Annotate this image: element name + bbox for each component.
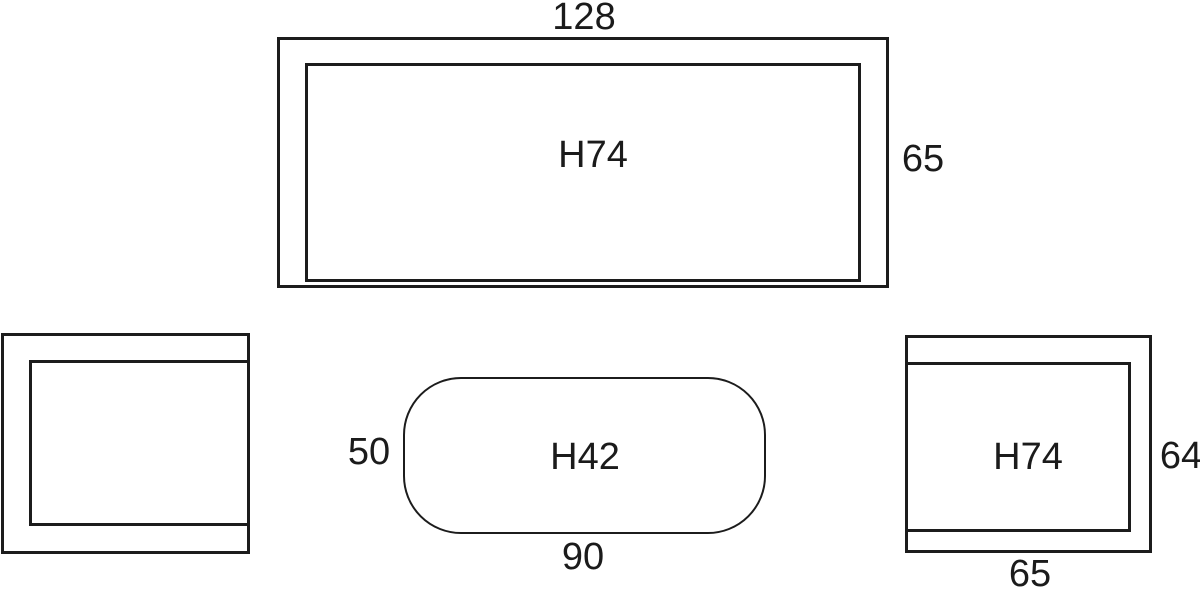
dim-label-front-width: 128 bbox=[552, 0, 615, 36]
side-view-left-inner-panel bbox=[29, 360, 247, 526]
dim-label-side-width: 65 bbox=[1009, 555, 1051, 592]
dim-label-table-height: H42 bbox=[550, 438, 620, 476]
dim-label-side-depth: 64 bbox=[1160, 437, 1200, 475]
side-view-left-outline bbox=[1, 333, 250, 554]
dim-label-front-side: 65 bbox=[902, 140, 944, 178]
dim-label-table-depth: 50 bbox=[348, 433, 390, 471]
dim-label-side-height: H74 bbox=[993, 438, 1063, 476]
dim-label-front-height: H74 bbox=[558, 136, 628, 174]
dimension-diagram-canvas: 128 H74 65 50 H42 90 H74 64 65 bbox=[0, 0, 1200, 592]
dim-label-table-width: 90 bbox=[562, 538, 604, 576]
